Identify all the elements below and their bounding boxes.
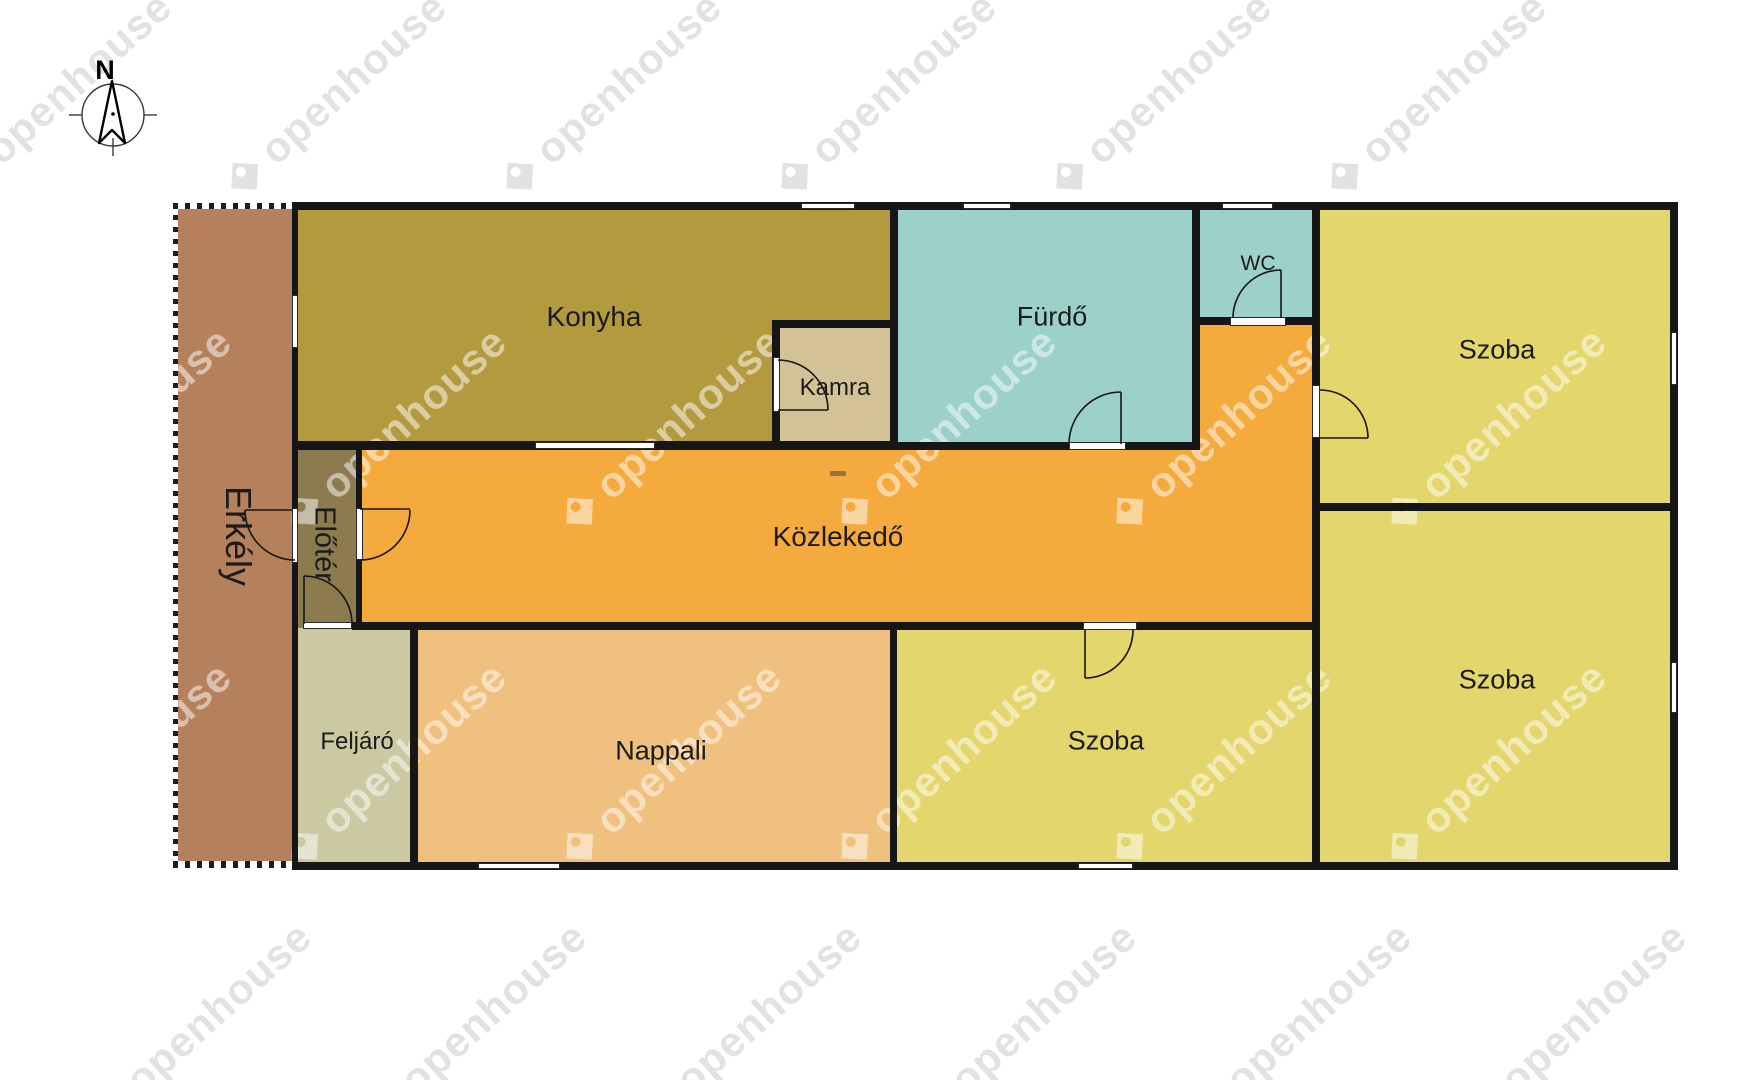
room-label-szoba-top-right: Szoba	[1459, 335, 1536, 366]
wall-szoba-right-divider	[1320, 503, 1670, 511]
door-threshold-szoba-top-right	[1312, 385, 1320, 438]
balcony-dashed-edge-top	[173, 203, 292, 209]
window-konyha-kozlekedo	[535, 442, 655, 449]
openhouse-logo-icon	[216, 148, 272, 204]
door-threshold-erkely	[292, 508, 298, 563]
window-top-furdo	[963, 203, 1011, 209]
window-top-konyha	[801, 203, 855, 209]
door-threshold-kamra	[773, 357, 780, 412]
room-label-wc: WC	[1241, 252, 1276, 276]
room-label-nappali: Nappali	[615, 736, 707, 767]
wall-furdo-wc	[1192, 210, 1200, 450]
room-label-feljaro: Feljáró	[320, 728, 393, 756]
wall-nappali-szoba	[890, 630, 897, 862]
watermark-item: openhouse	[904, 912, 1146, 1080]
openhouse-logo-icon	[491, 148, 547, 204]
watermark-item: openhouse	[214, 0, 456, 208]
room-label-kamra: Kamra	[800, 374, 871, 402]
room-label-konyha: Konyha	[547, 301, 642, 333]
window-right-szoba-top	[1671, 332, 1677, 385]
door-threshold-eloter-east	[356, 508, 363, 560]
room-label-kozlekedo: Közlekedő	[773, 521, 904, 553]
room-label-szoba-bottom-right: Szoba	[1459, 665, 1536, 696]
wall-outer-right	[1670, 202, 1678, 870]
door-threshold-eloter-south	[303, 622, 352, 629]
wall-furdo-south	[898, 442, 1200, 450]
watermark-item: openhouse	[629, 912, 871, 1080]
watermark-item: openhouse	[1179, 912, 1421, 1080]
openhouse-logo-icon	[1, 818, 57, 874]
openhouse-logo-icon	[1041, 148, 1097, 204]
room-label-eloter: Előtér	[308, 506, 341, 582]
room-label-szoba-bottom-middle: Szoba	[1068, 726, 1145, 757]
window-right-szoba-bottom	[1671, 662, 1677, 713]
compass-north-label: N	[95, 55, 115, 85]
openhouse-logo-icon	[1316, 148, 1372, 204]
watermark-item: openhouse	[79, 912, 321, 1080]
balcony-dashed-edge-bottom	[173, 861, 292, 868]
floorplan-canvas: openhouse openhouse openhouse openhouse …	[0, 0, 1744, 1080]
room-label-erkely: Erkély	[217, 486, 259, 586]
wall-kamra-north	[772, 320, 898, 328]
compass-center-dot	[111, 112, 115, 116]
openhouse-logo-icon	[1, 483, 57, 539]
openhouse-logo-icon	[766, 148, 822, 204]
window-konyha-erkely	[292, 295, 298, 348]
compass-north-indicator: N	[55, 35, 180, 165]
watermark-item: openhouse	[1039, 0, 1281, 208]
window-top-wc	[1222, 203, 1273, 209]
door-threshold-szoba-bottom	[1083, 622, 1137, 630]
watermark-item: openhouse	[1314, 0, 1556, 208]
window-bottom-szoba	[1078, 863, 1133, 869]
watermark-item: openhouse	[1454, 912, 1696, 1080]
wall-kozlekedo-south	[352, 622, 1320, 630]
room-label-furdo: Fürdő	[1017, 302, 1088, 333]
wall-szoba-bottom-divider	[1312, 630, 1320, 862]
door-threshold-furdo	[1069, 442, 1126, 450]
wall-konyha-furdo	[890, 210, 898, 450]
watermark-item: openhouse	[489, 0, 731, 208]
compass-needle	[99, 81, 125, 143]
watermark-item: openhouse	[354, 912, 596, 1080]
door-threshold-wc	[1230, 317, 1286, 326]
watermark-item: openhouse	[764, 0, 1006, 208]
window-bottom-nappali	[478, 863, 560, 869]
area-note-smudge	[830, 471, 846, 476]
balcony-dashed-edge-left	[173, 203, 178, 868]
wall-feljaro-east	[410, 622, 418, 870]
